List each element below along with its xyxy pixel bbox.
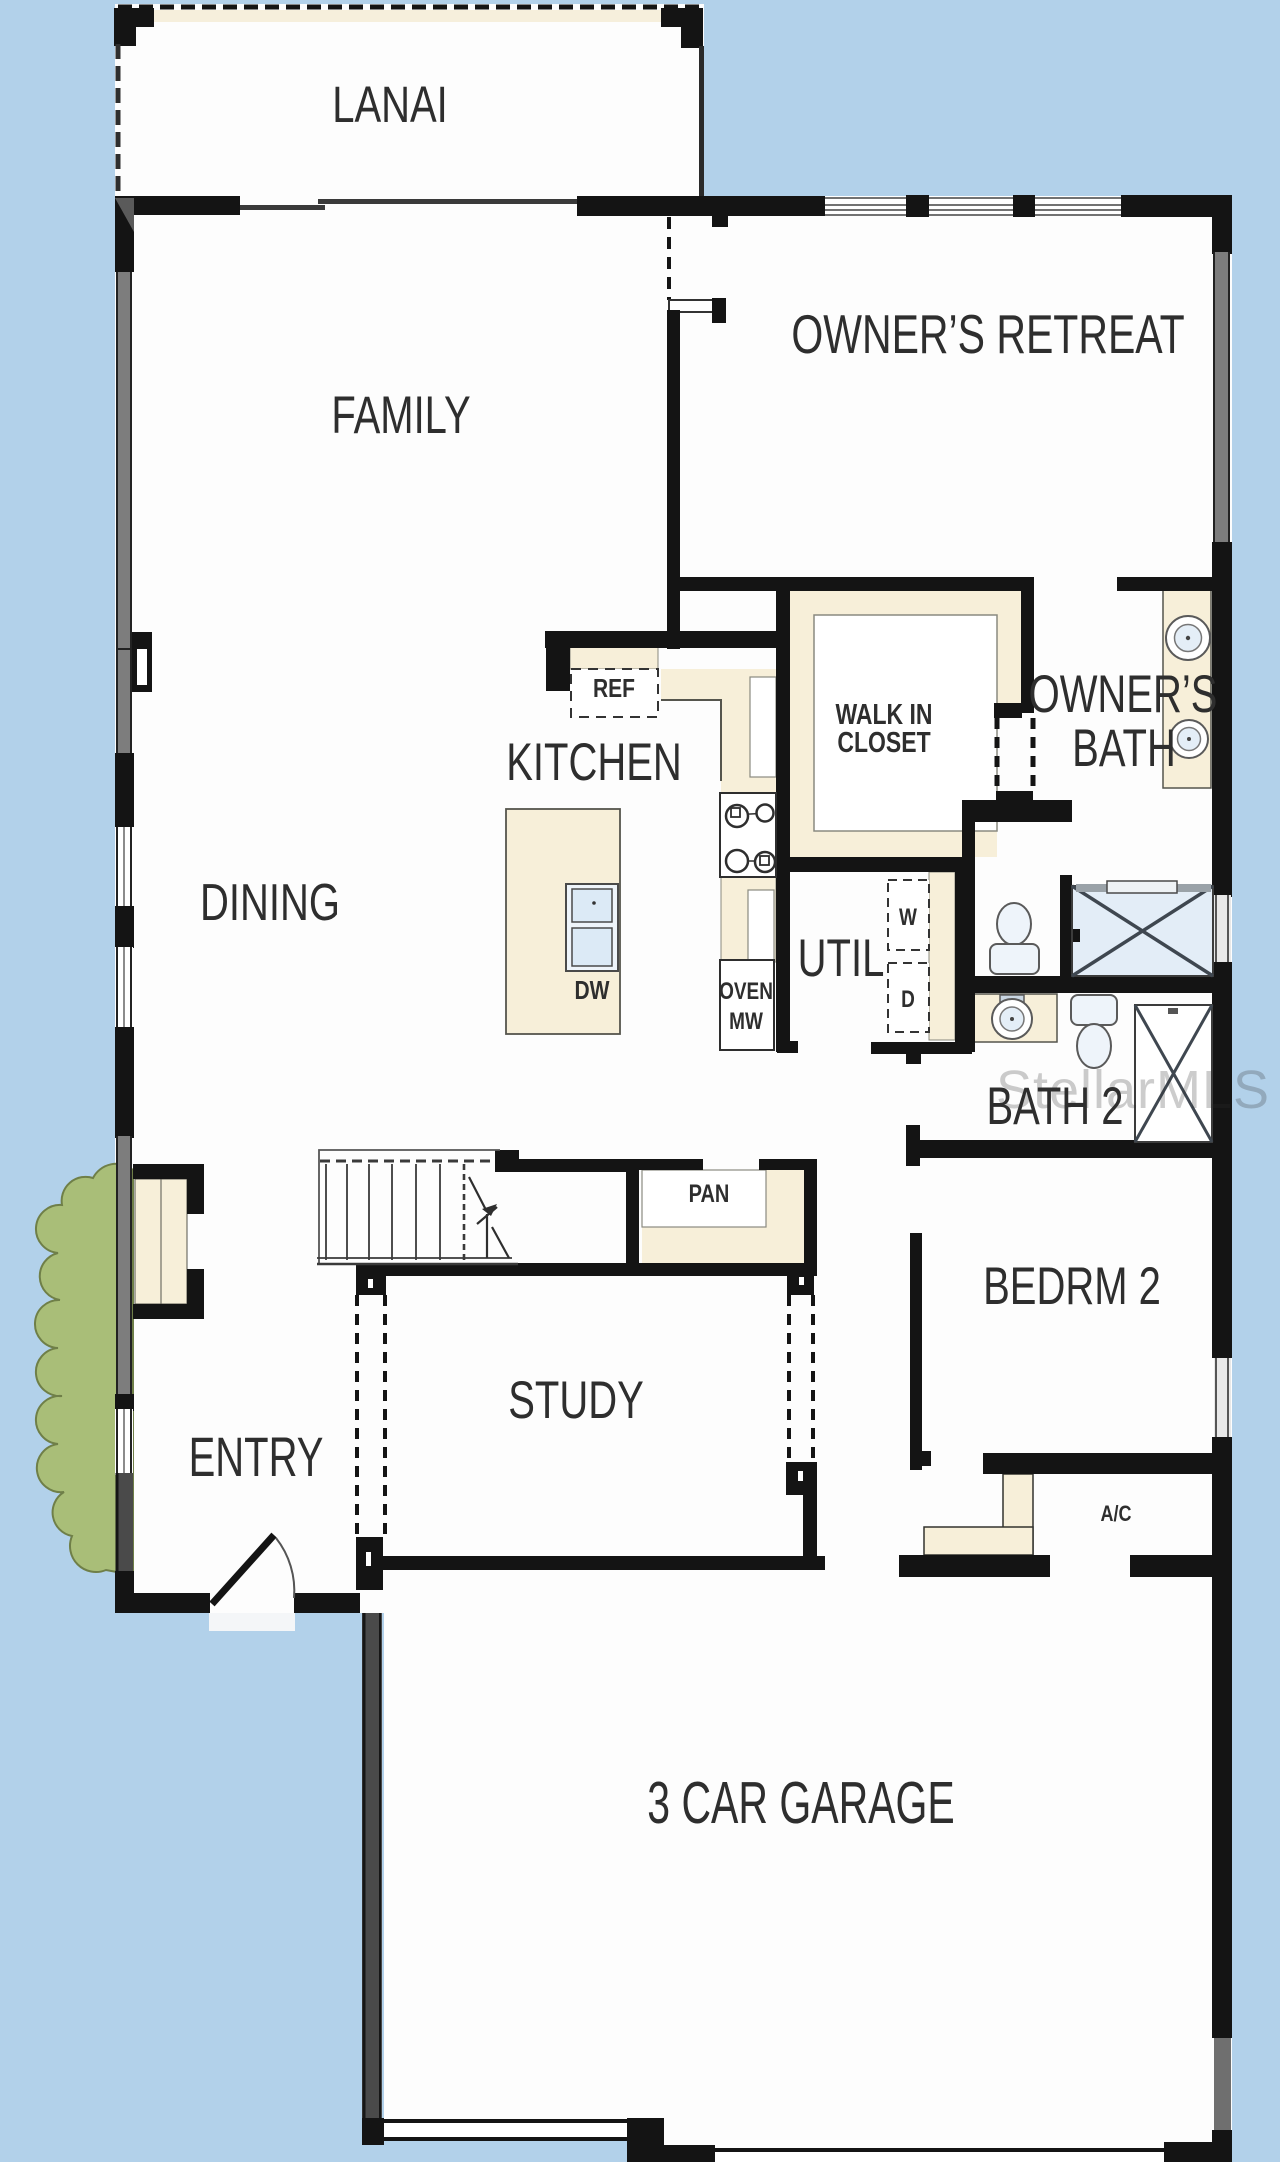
svg-text:UTIL: UTIL — [798, 927, 885, 987]
svg-text:BEDRM 2: BEDRM 2 — [983, 1255, 1161, 1315]
svg-text:W: W — [899, 904, 918, 931]
svg-text:LANAI: LANAI — [332, 75, 448, 133]
svg-text:DINING: DINING — [200, 873, 340, 931]
svg-text:BATH: BATH — [1072, 717, 1176, 777]
svg-text:REF: REF — [593, 674, 635, 704]
svg-text:FAMILY: FAMILY — [331, 384, 470, 444]
svg-text:STUDY: STUDY — [508, 1369, 644, 1429]
svg-text:ENTRY: ENTRY — [189, 1427, 324, 1489]
svg-text:D: D — [901, 986, 915, 1013]
svg-text:A/C: A/C — [1101, 1502, 1132, 1526]
svg-text:CLOSET: CLOSET — [837, 725, 930, 758]
svg-text:OWNER’S RETREAT: OWNER’S RETREAT — [791, 304, 1184, 365]
svg-text:KITCHEN: KITCHEN — [506, 731, 682, 791]
svg-text:3 CAR GARAGE: 3 CAR GARAGE — [647, 1769, 954, 1835]
svg-text:PAN: PAN — [689, 1180, 730, 1208]
svg-text:BATH 2: BATH 2 — [986, 1075, 1123, 1135]
svg-text:DW: DW — [575, 976, 610, 1006]
svg-text:OWNER’S: OWNER’S — [1029, 663, 1218, 723]
svg-text:MW: MW — [729, 1008, 763, 1035]
svg-text:OVEN: OVEN — [719, 978, 773, 1005]
